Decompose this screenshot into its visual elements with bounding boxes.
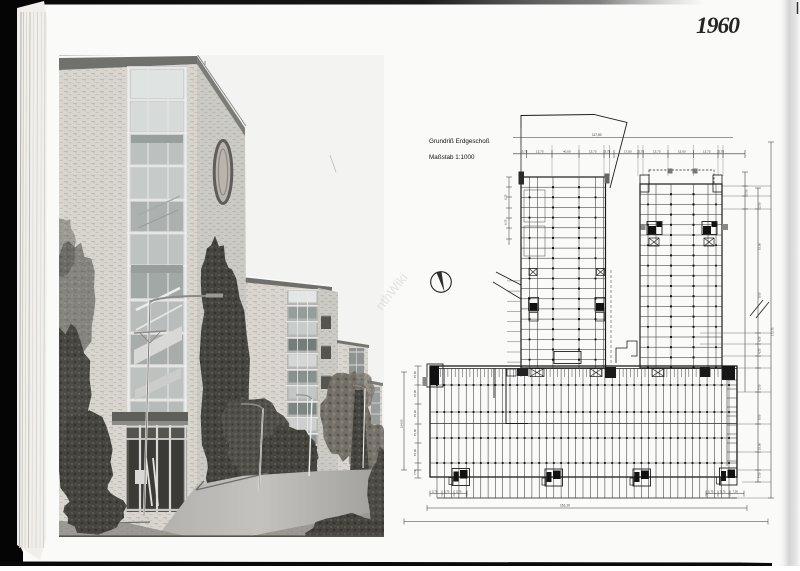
svg-text:5,75: 5,75 [708, 490, 714, 494]
svg-text:13,75: 13,75 [536, 149, 544, 153]
svg-text:161,10: 161,10 [560, 504, 570, 508]
svg-text:3,75: 3,75 [638, 149, 644, 153]
svg-text:7,50: 7,50 [733, 490, 739, 494]
svg-text:15,00: 15,00 [413, 371, 417, 378]
svg-text:9,50: 9,50 [758, 292, 762, 298]
svg-text:5,75: 5,75 [456, 490, 462, 494]
svg-text:3,75: 3,75 [605, 149, 611, 153]
svg-text:7,50: 7,50 [758, 472, 762, 478]
svg-text:15,00: 15,00 [413, 390, 417, 397]
svg-text:13,75: 13,75 [589, 149, 597, 153]
svg-text:13,75: 13,75 [703, 149, 711, 153]
svg-text:7,50: 7,50 [413, 469, 417, 475]
svg-text:6,25: 6,25 [504, 194, 508, 200]
svg-text:15,00: 15,00 [758, 443, 762, 450]
svg-text:2,50: 2,50 [758, 202, 762, 208]
svg-text:17,50: 17,50 [624, 149, 632, 153]
svg-text:5,75: 5,75 [720, 490, 726, 494]
svg-text:173,75: 173,75 [771, 327, 775, 336]
svg-text:164,05: 164,05 [400, 419, 404, 428]
svg-text:5,75: 5,75 [444, 490, 450, 494]
svg-text:5,75: 5,75 [432, 490, 438, 494]
svg-text:13,75: 13,75 [653, 149, 661, 153]
svg-text:15,00: 15,00 [758, 243, 762, 250]
svg-text:117,50: 117,50 [592, 133, 602, 137]
svg-text:40,00: 40,00 [563, 149, 571, 153]
svg-text:4,25: 4,25 [758, 336, 762, 342]
svg-text:3,75: 3,75 [718, 149, 724, 153]
svg-text:1960: 1960 [696, 13, 740, 39]
svg-text:7,50: 7,50 [745, 189, 749, 195]
svg-text:4,25: 4,25 [758, 348, 762, 354]
svg-text:Maßstab 1:1000: Maßstab 1:1000 [429, 154, 475, 161]
svg-text:2,50: 2,50 [758, 384, 762, 390]
svg-text:15,00: 15,00 [413, 429, 417, 436]
svg-text:15,00: 15,00 [678, 149, 686, 153]
svg-text:15,00: 15,00 [413, 449, 417, 456]
svg-text:Grundriß Erdgeschoß: Grundriß Erdgeschoß [429, 138, 490, 145]
svg-text:3,75: 3,75 [522, 149, 528, 153]
svg-text:6,25: 6,25 [504, 219, 508, 225]
svg-text:15,00: 15,00 [413, 410, 417, 417]
svg-text:9,50: 9,50 [758, 414, 762, 420]
